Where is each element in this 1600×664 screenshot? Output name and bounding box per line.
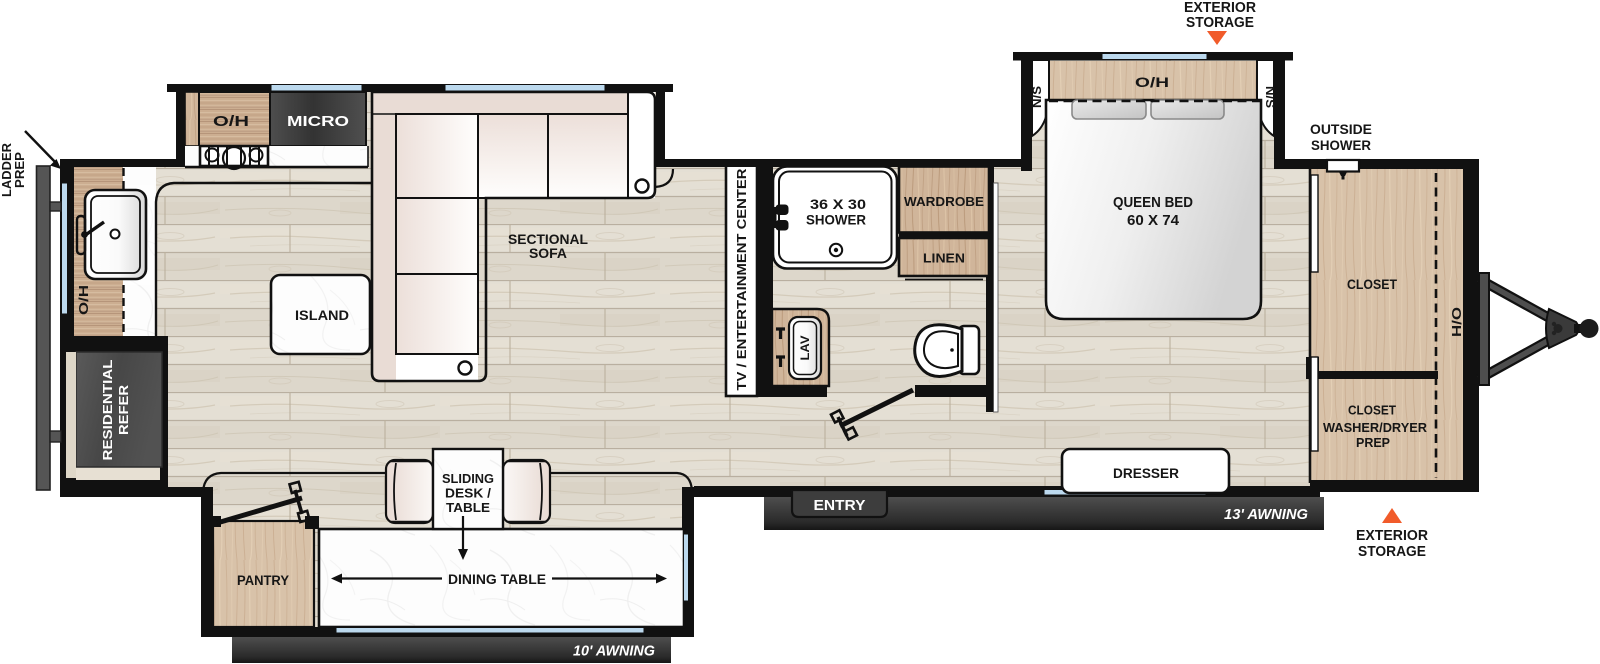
svg-text:DINING TABLE: DINING TABLE <box>448 572 546 587</box>
svg-text:QUEEN BED: QUEEN BED <box>1113 194 1193 211</box>
svg-text:N/S: N/S <box>1032 86 1044 108</box>
svg-text:EXTERIOR: EXTERIOR <box>1356 528 1429 544</box>
svg-text:OUTSIDE: OUTSIDE <box>1310 122 1372 137</box>
svg-text:WARDROBE: WARDROBE <box>904 194 984 209</box>
svg-text:SHOWER: SHOWER <box>1311 138 1371 153</box>
svg-text:SHOWER: SHOWER <box>806 212 866 228</box>
svg-text:13' AWNING: 13' AWNING <box>1224 506 1308 523</box>
svg-text:RESIDENTIAL: RESIDENTIAL <box>100 359 115 460</box>
svg-text:O/H: O/H <box>1449 307 1464 337</box>
svg-text:ENTRY: ENTRY <box>814 498 866 514</box>
svg-text:TV / ENTERTAINMENT CENTER: TV / ENTERTAINMENT CENTER <box>735 169 749 391</box>
svg-text:CLOSET: CLOSET <box>1348 403 1396 418</box>
svg-text:PREP: PREP <box>13 152 27 188</box>
svg-text:LADDER: LADDER <box>0 143 14 197</box>
svg-text:SECTIONAL: SECTIONAL <box>508 232 588 247</box>
svg-text:MICRO: MICRO <box>287 113 349 130</box>
svg-text:LINEN: LINEN <box>923 251 965 266</box>
svg-text:EXTERIOR: EXTERIOR <box>1184 0 1257 16</box>
svg-text:DRESSER: DRESSER <box>1113 466 1179 481</box>
svg-text:PREP: PREP <box>1356 435 1390 450</box>
svg-text:CLOSET: CLOSET <box>1347 277 1398 292</box>
svg-text:O/H: O/H <box>1135 74 1169 90</box>
svg-text:ISLAND: ISLAND <box>295 307 349 323</box>
svg-text:SOFA: SOFA <box>529 246 567 261</box>
svg-text:O/H: O/H <box>76 285 91 315</box>
svg-text:STORAGE: STORAGE <box>1358 544 1426 560</box>
svg-text:O/H: O/H <box>213 113 249 130</box>
svg-text:36 X 30: 36 X 30 <box>810 196 866 212</box>
svg-text:WASHER/DRYER: WASHER/DRYER <box>1323 420 1428 435</box>
svg-text:DESK /: DESK / <box>445 487 492 501</box>
svg-text:LAV: LAV <box>798 336 812 361</box>
svg-text:10' AWNING: 10' AWNING <box>573 643 655 660</box>
svg-text:60 X 74: 60 X 74 <box>1127 212 1180 229</box>
svg-text:PANTRY: PANTRY <box>237 573 289 588</box>
svg-text:REFER: REFER <box>116 384 131 435</box>
svg-text:STORAGE: STORAGE <box>1186 15 1254 31</box>
svg-text:N/S: N/S <box>1263 86 1275 108</box>
svg-text:TABLE: TABLE <box>446 501 490 515</box>
svg-text:SLIDING: SLIDING <box>442 472 494 486</box>
